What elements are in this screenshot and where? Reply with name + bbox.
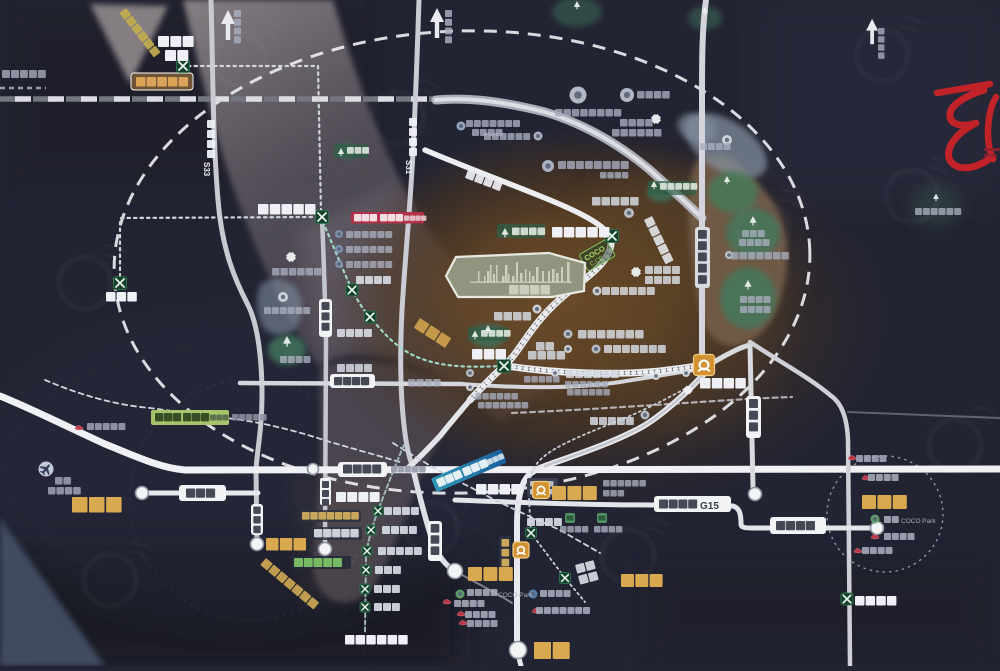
- svg-text:S33: S33: [202, 162, 211, 177]
- svg-text:S31: S31: [404, 160, 413, 175]
- svg-text:COCO Park: COCO Park: [901, 518, 936, 525]
- svg-text:G15: G15: [700, 501, 719, 512]
- svg-text:COCO Park: COCO Park: [498, 592, 533, 599]
